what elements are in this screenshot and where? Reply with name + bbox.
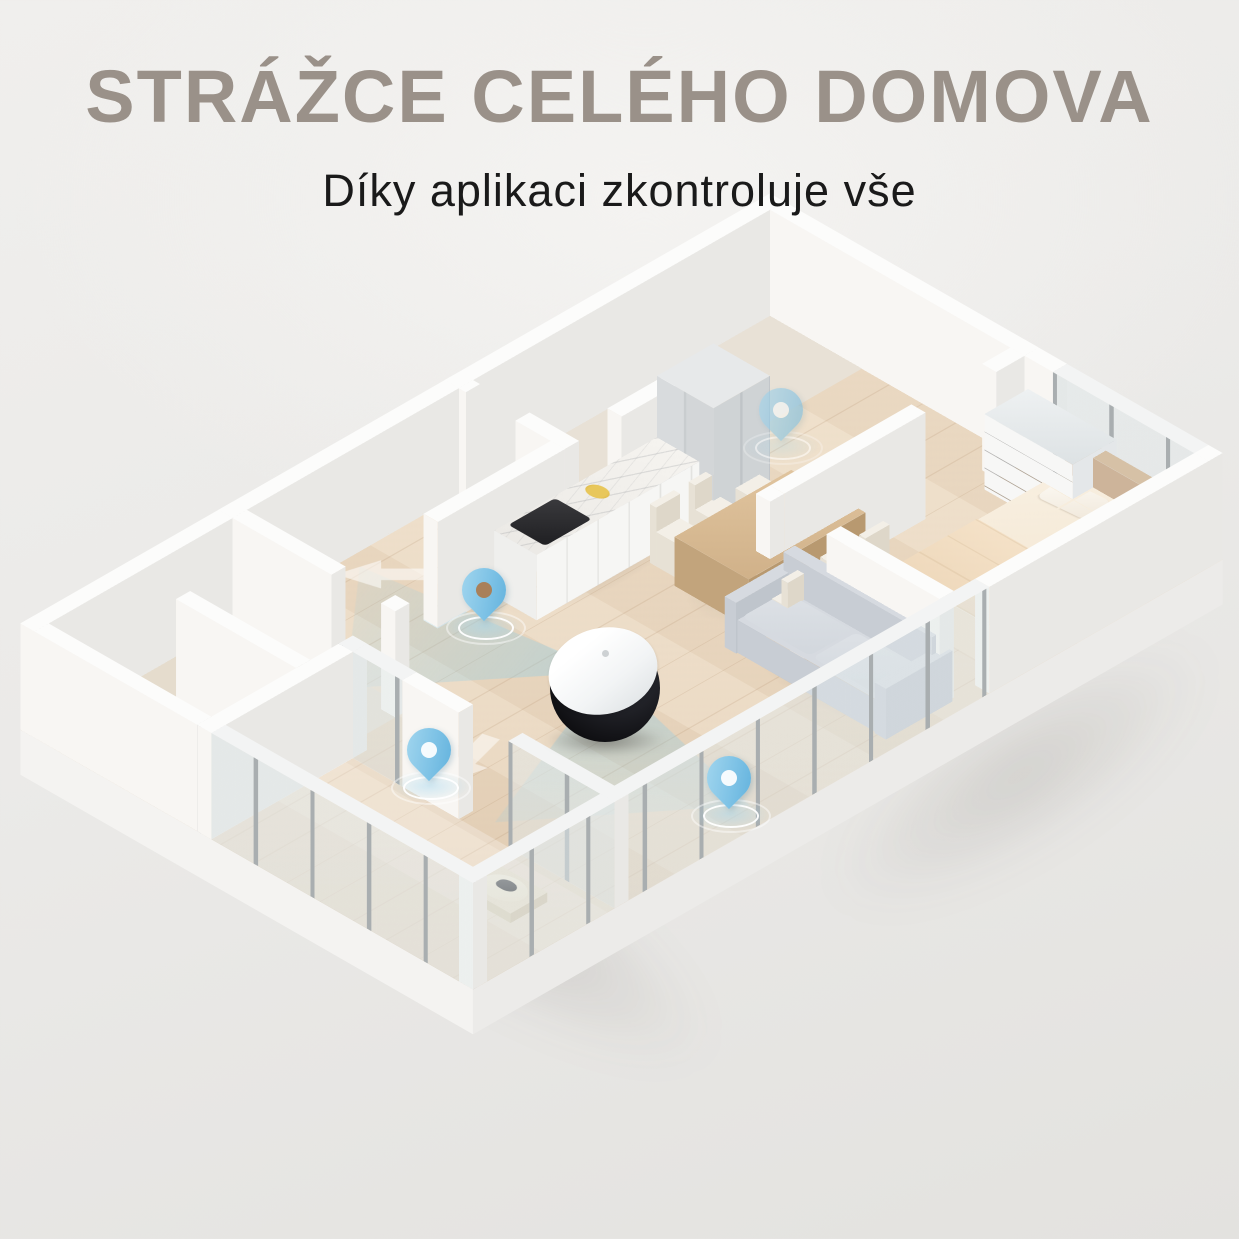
wall-end (459, 705, 473, 820)
sofa-arm-front (725, 596, 736, 653)
wall-end (197, 725, 211, 840)
wall-end (424, 514, 438, 629)
page-subtitle: Díky aplikaci zkontroluje vše (0, 165, 1239, 217)
wall-end (614, 794, 628, 909)
wall-end (473, 875, 487, 990)
header: STRÁŽCE CELÉHO DOMOVA Díky aplikaci zkon… (0, 0, 1239, 217)
page-title: STRÁŽCE CELÉHO DOMOVA (0, 54, 1239, 139)
